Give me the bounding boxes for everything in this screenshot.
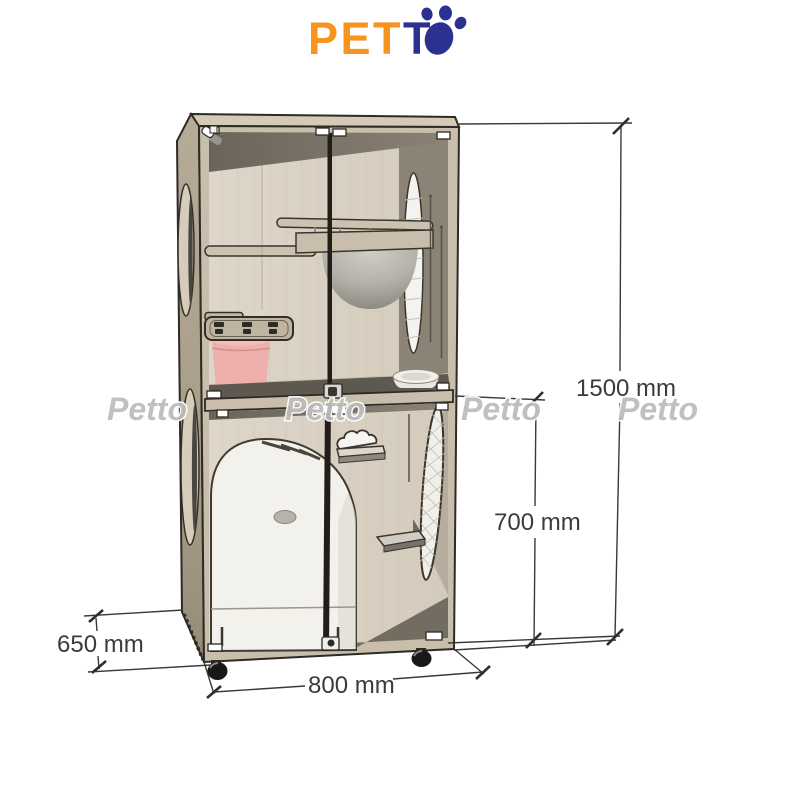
svg-text:Petto: Petto xyxy=(107,391,187,427)
svg-text:650 mm: 650 mm xyxy=(57,631,144,658)
svg-text:700 mm: 700 mm xyxy=(494,509,581,536)
svg-text:Petto: Petto xyxy=(618,391,698,427)
svg-text:800 mm: 800 mm xyxy=(308,672,395,699)
svg-text:Petto: Petto xyxy=(461,391,541,427)
svg-text:PETT: PETT xyxy=(308,13,433,64)
svg-text:Petto: Petto xyxy=(285,391,365,427)
